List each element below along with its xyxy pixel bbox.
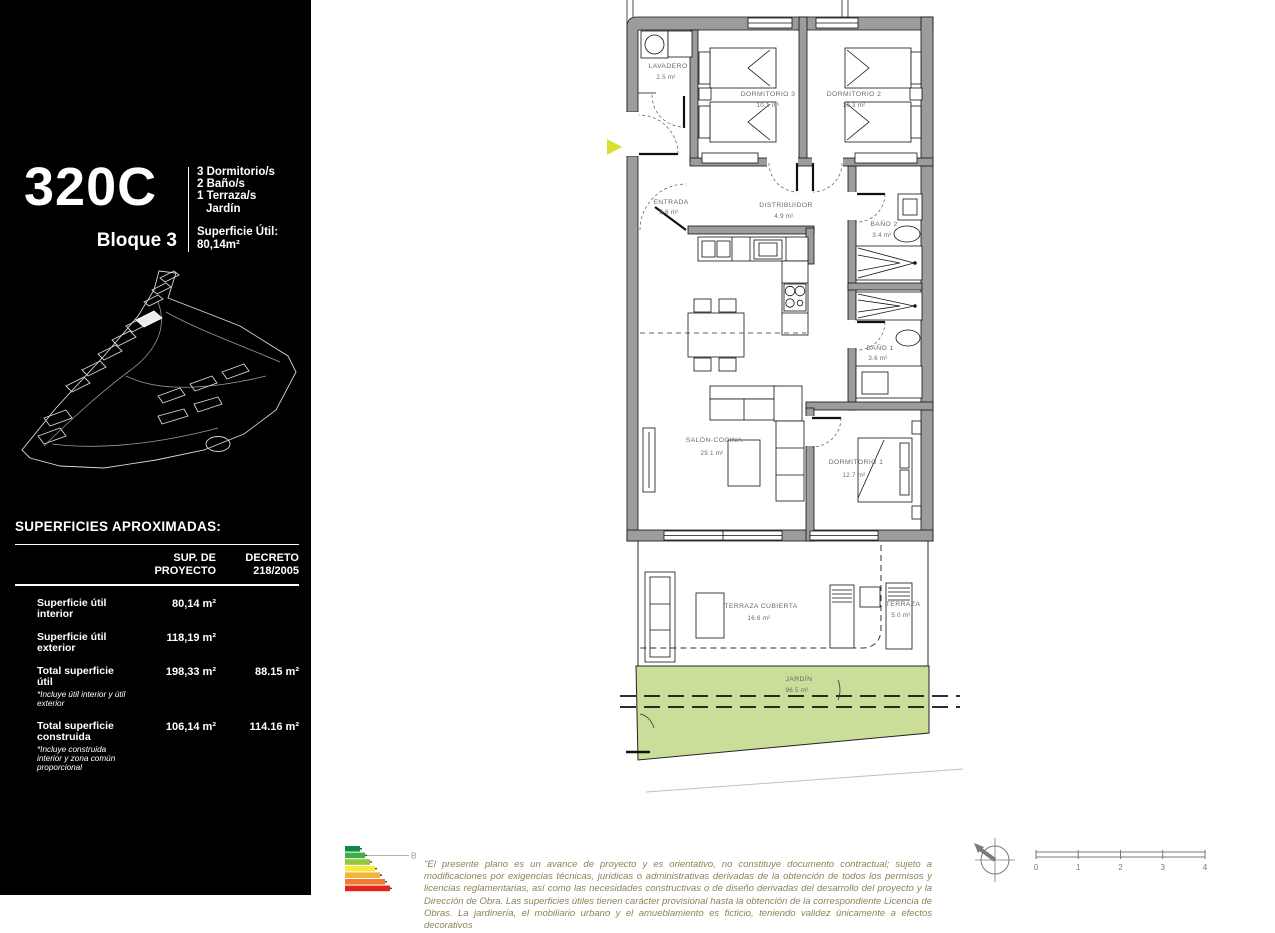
site-buildings <box>38 271 249 452</box>
scale-bar: 0 1 2 3 4 <box>1028 846 1213 882</box>
col-header-proyecto: SUP. DE PROYECTO <box>128 552 216 578</box>
svg-text:DORMITORIO 3: DORMITORIO 3 <box>741 91 796 98</box>
svg-text:12.7 m²: 12.7 m² <box>842 472 865 479</box>
room-label-terraza-cubierta: TERRAZA CUBIERTA 16.6 m² <box>724 603 797 622</box>
svg-text:3.4 m²: 3.4 m² <box>872 232 891 239</box>
svg-text:10.1 m²: 10.1 m² <box>756 102 779 109</box>
row-label: Total superficie útil *Incluye útil inte… <box>15 666 128 709</box>
svg-text:3: 3 <box>1161 863 1166 872</box>
garden <box>620 666 963 792</box>
svg-text:4: 4 <box>1203 863 1208 872</box>
rating-letter: B <box>411 851 417 861</box>
table-header: SUP. DE PROYECTO DECRETO 218/2005 <box>15 552 299 578</box>
table-row: Total superficie construida *Incluye con… <box>15 721 299 773</box>
table-rule-header <box>15 584 299 586</box>
row-decreto <box>216 632 299 654</box>
svg-text:DORMITORIO 2: DORMITORIO 2 <box>827 91 882 98</box>
col-header-decreto: DECRETO 218/2005 <box>216 552 299 578</box>
unit-id: 320C <box>24 160 157 214</box>
site-roads <box>44 302 280 446</box>
furniture <box>638 31 922 519</box>
site-plan-drawing <box>8 268 306 482</box>
row-label: Superficie útil interior <box>15 598 128 620</box>
row-label: Superficie útil exterior <box>15 632 128 654</box>
room-label-distribuidor: DISTRIBUIDOR 4.9 m² <box>759 202 813 220</box>
table-rule-top <box>15 544 299 545</box>
svg-text:4.9 m²: 4.9 m² <box>774 213 793 220</box>
entrance-arrow-icon <box>607 139 622 155</box>
svg-text:10.3 m²: 10.3 m² <box>842 102 865 109</box>
svg-text:96.5 m²: 96.5 m² <box>785 687 808 694</box>
table-row: Superficie útil interior 80,14 m² <box>15 598 299 620</box>
svg-text:BAÑO 1: BAÑO 1 <box>866 343 893 352</box>
unit-block: Bloque 3 <box>24 230 177 252</box>
room-label-bano1: BAÑO 1 3.6 m² <box>866 343 893 362</box>
surface-label: Superficie Útil: <box>197 226 278 239</box>
svg-text:16.6 m²: 16.6 m² <box>747 615 770 622</box>
table-row: Superficie útil exterior 118,19 m² <box>15 632 299 654</box>
row-proyecto: 80,14 m² <box>128 598 216 620</box>
legal-disclaimer: "El presente plano es un avance de proye… <box>424 859 932 933</box>
unit-specs: 3 Dormitorio/s 2 Baño/s 1 Terraza/s Jard… <box>197 166 275 215</box>
areas-title: SUPERFICIES APROXIMADAS: <box>15 519 299 534</box>
info-panel: 320C Bloque 3 3 Dormitorio/s 2 Baño/s 1 … <box>0 0 311 895</box>
surface-util: Superficie Útil: 80,14m² <box>197 226 278 252</box>
svg-text:1: 1 <box>1076 863 1081 872</box>
north-compass-icon <box>963 832 1027 892</box>
svg-text:29.1 m²: 29.1 m² <box>700 450 723 457</box>
room-label-bano2: BAÑO 2 3.4 m² <box>870 219 897 239</box>
row-decreto <box>216 598 299 620</box>
table-row: Total superficie útil *Incluye útil inte… <box>15 666 299 709</box>
row-label: Total superficie construida *Incluye con… <box>15 721 128 773</box>
svg-text:SALÓN-COCINA: SALÓN-COCINA <box>686 435 743 444</box>
svg-text:DISTRIBUIDOR: DISTRIBUIDOR <box>759 202 813 209</box>
row-note: *Incluye construida interior y zona comú… <box>37 745 128 773</box>
svg-text:BAÑO 2: BAÑO 2 <box>870 219 897 228</box>
surface-value: 80,14m² <box>197 239 278 252</box>
svg-text:3.6 m²: 3.6 m² <box>659 209 678 216</box>
svg-text:0: 0 <box>1034 863 1039 872</box>
areas-table: SUPERFICIES APROXIMADAS: SUP. DE PROYECT… <box>15 519 299 772</box>
svg-text:5.0 m²: 5.0 m² <box>891 612 910 619</box>
svg-text:TERRAZA: TERRAZA <box>886 601 921 608</box>
row-decreto: 114.16 m² <box>216 721 299 773</box>
room-label-lavadero: LAVADERO 2.5 m² <box>648 63 687 81</box>
svg-text:ENTRADA: ENTRADA <box>653 199 688 206</box>
energy-rating-icon: B <box>343 845 428 893</box>
room-label-entrada: ENTRADA 3.6 m² <box>653 199 688 216</box>
svg-text:JARDÍN: JARDÍN <box>786 674 813 683</box>
row-proyecto: 198,33 m² <box>128 666 216 709</box>
spec-garden: Jardín <box>197 203 275 215</box>
scale-labels: 0 1 2 3 4 <box>1034 863 1208 872</box>
floor-plan: LAVADERO 2.5 m² DORMITORIO 3 10.1 m² DOR… <box>600 0 975 800</box>
svg-text:2.5 m²: 2.5 m² <box>656 74 675 81</box>
row-proyecto: 106,14 m² <box>128 721 216 773</box>
svg-text:DORMITORIO 1: DORMITORIO 1 <box>829 459 884 466</box>
svg-text:LAVADERO: LAVADERO <box>648 63 687 70</box>
row-proyecto: 118,19 m² <box>128 632 216 654</box>
spec-terraces: 1 Terraza/s <box>197 190 275 202</box>
header-divider <box>188 167 189 252</box>
svg-text:2: 2 <box>1118 863 1123 872</box>
spec-bathrooms: 2 Baño/s <box>197 178 275 190</box>
row-decreto: 88.15 m² <box>216 666 299 709</box>
svg-text:3.6 m²: 3.6 m² <box>868 355 887 362</box>
svg-text:TERRAZA CUBIERTA: TERRAZA CUBIERTA <box>724 603 797 610</box>
row-note: *Incluye útil interior y útil exterior <box>37 690 128 709</box>
energy-bars <box>345 846 392 891</box>
spec-bedrooms: 3 Dormitorio/s <box>197 166 275 178</box>
